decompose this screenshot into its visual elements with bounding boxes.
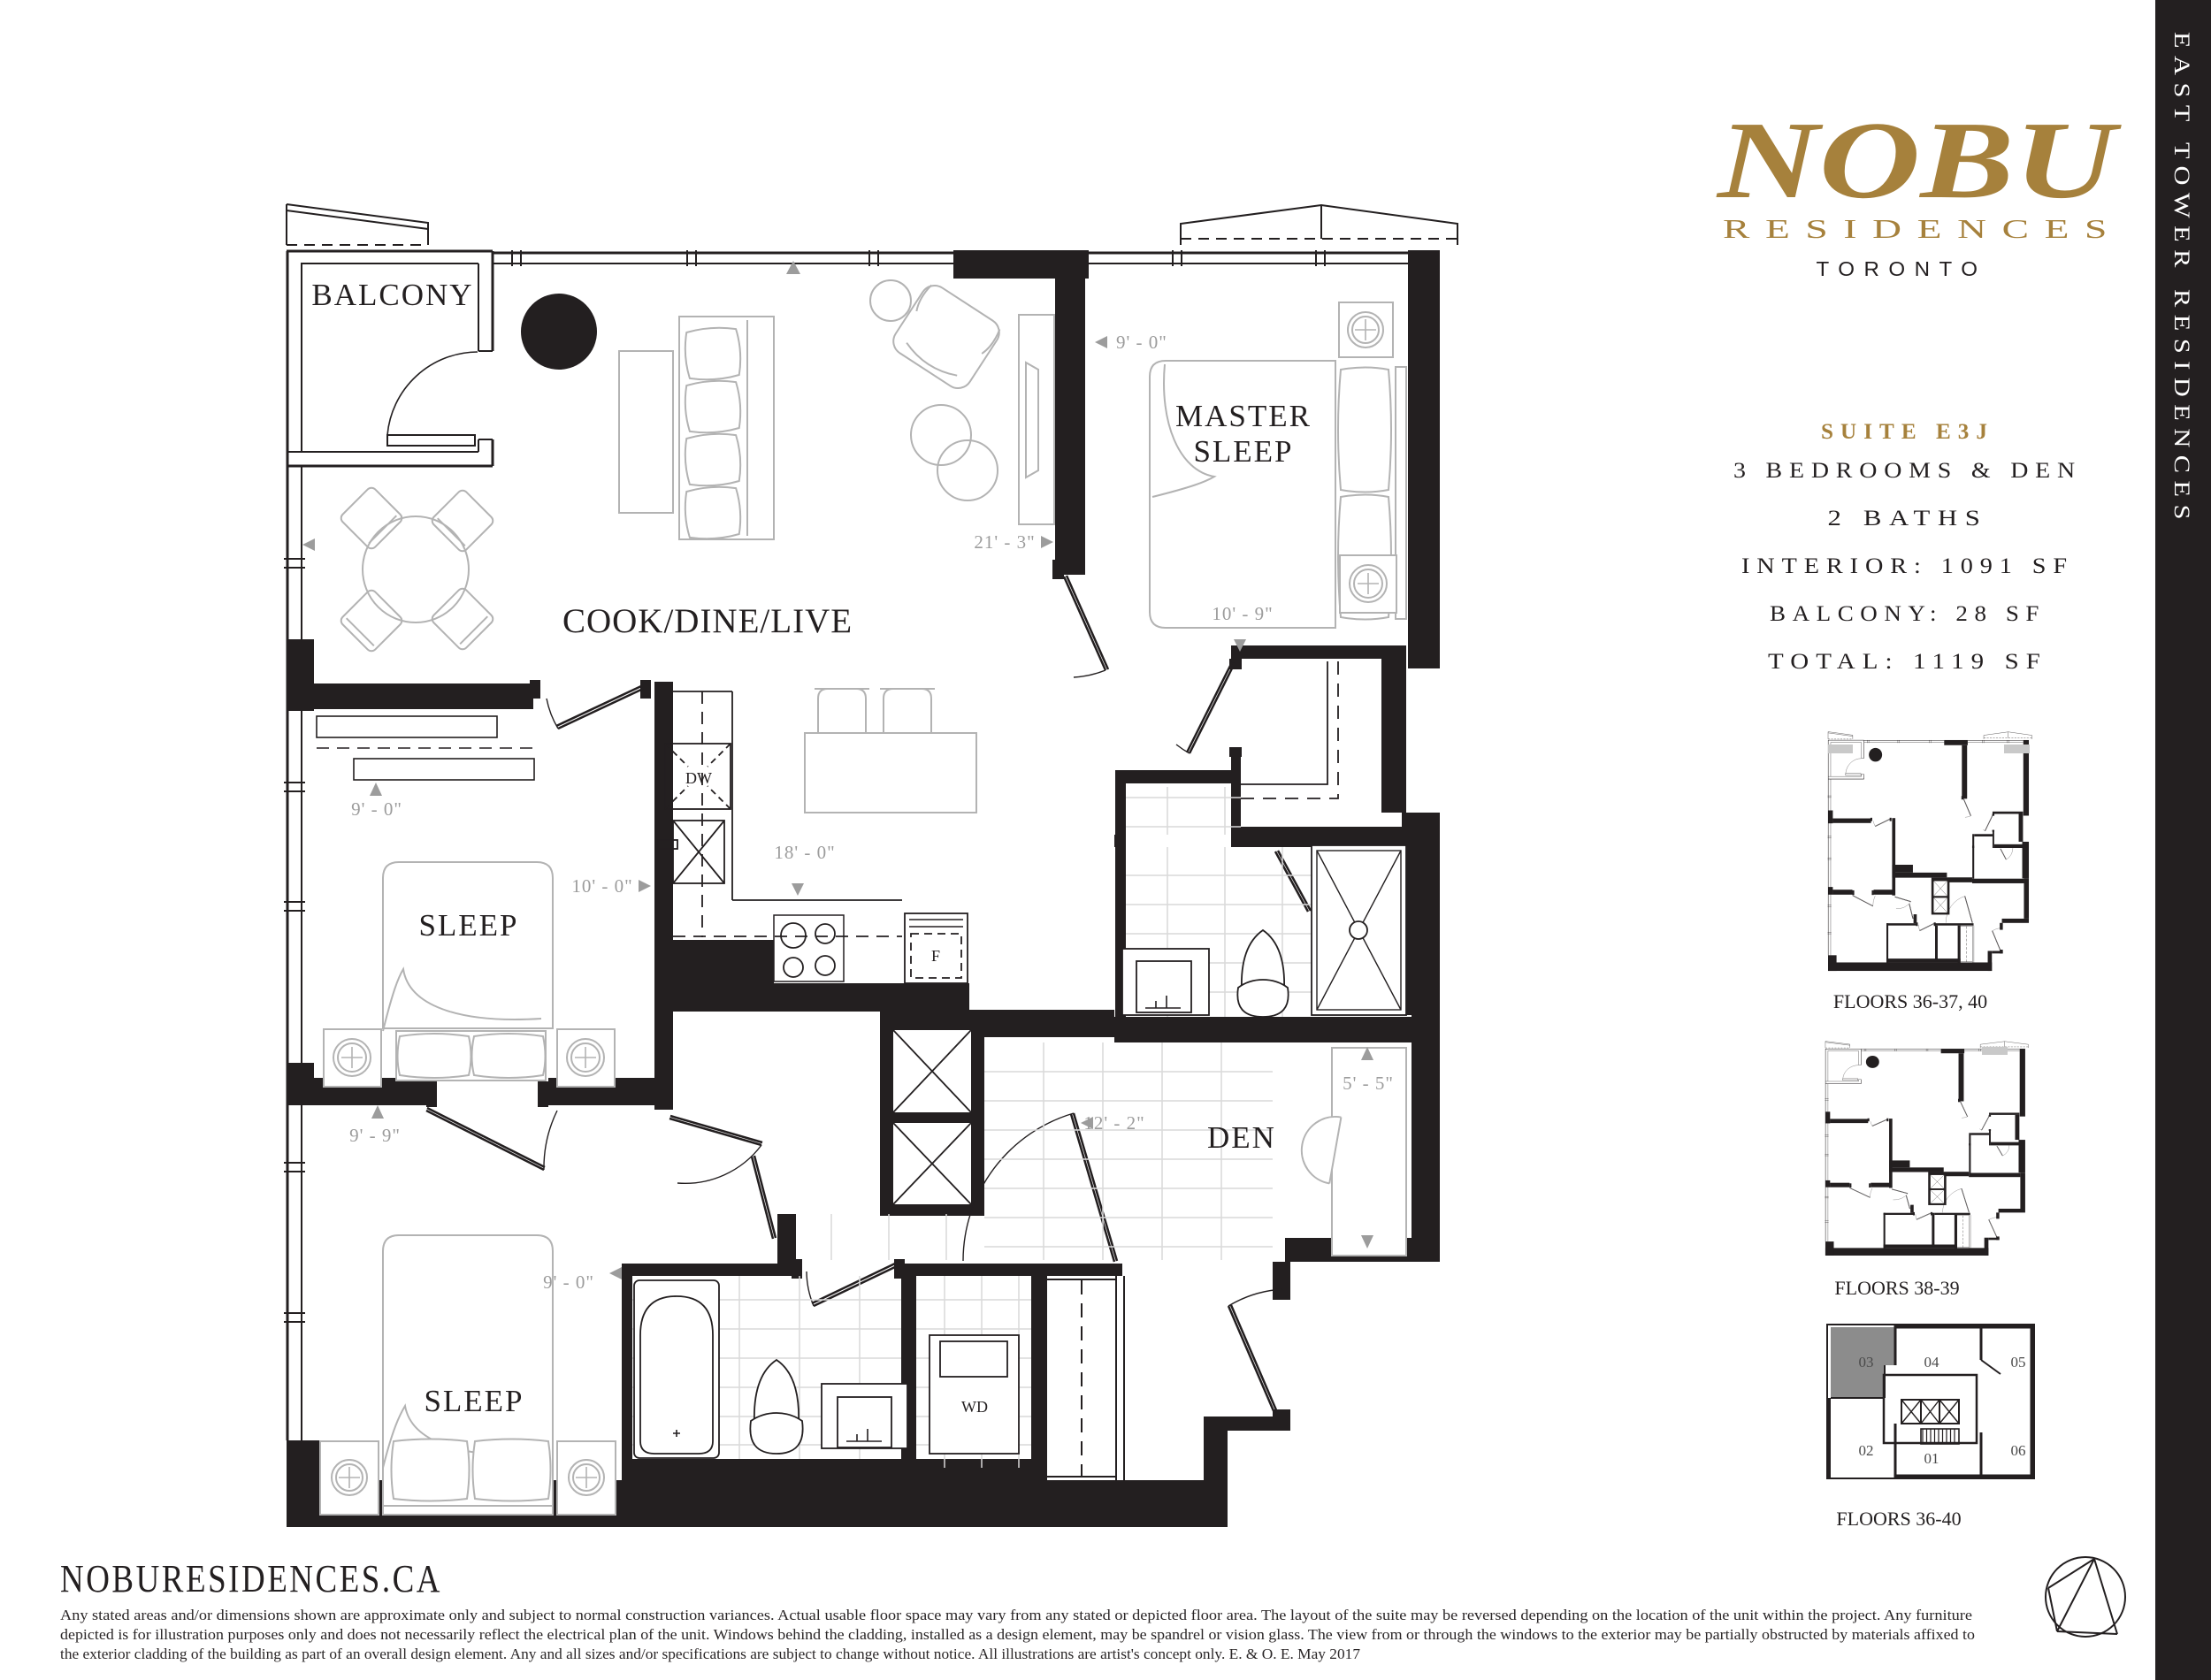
svg-text:F: F — [931, 947, 940, 965]
svg-text:2 BATHS: 2 BATHS — [1828, 507, 1988, 531]
svg-text:01: 01 — [1924, 1450, 1939, 1467]
svg-text:TOTAL: 1119 SF: TOTAL: 1119 SF — [1768, 650, 2047, 674]
svg-text:04: 04 — [1924, 1354, 1940, 1371]
svg-text:10' - 9": 10' - 9" — [1212, 603, 1273, 624]
svg-text:INTERIOR: 1091 SF: INTERIOR: 1091 SF — [1741, 554, 2074, 578]
svg-text:NOBURESIDENCES.CA: NOBURESIDENCES.CA — [60, 1557, 442, 1600]
svg-text:FLOORS 36-40: FLOORS 36-40 — [1836, 1508, 1961, 1530]
svg-text:18' - 0": 18' - 0" — [774, 842, 835, 863]
svg-text:RESIDENCES: RESIDENCES — [1723, 213, 2123, 244]
svg-text:SLEEP: SLEEP — [1193, 434, 1293, 469]
svg-text:05: 05 — [2011, 1354, 2026, 1371]
svg-text:depicted is for illustration p: depicted is for illustration purposes on… — [60, 1626, 1975, 1643]
svg-text:TORONTO: TORONTO — [1817, 257, 1987, 280]
svg-text:COOK/DINE/LIVE: COOK/DINE/LIVE — [562, 602, 853, 640]
svg-text:SLEEP: SLEEP — [418, 908, 518, 943]
svg-text:12' - 2": 12' - 2" — [1083, 1112, 1144, 1134]
svg-text:21' - 3": 21' - 3" — [974, 531, 1035, 553]
svg-text:BALCONY: 28 SF: BALCONY: 28 SF — [1770, 602, 2046, 626]
svg-text:the exterior cladding of the b: the exterior cladding of the building as… — [60, 1646, 1360, 1662]
svg-text:SLEEP: SLEEP — [424, 1384, 524, 1418]
svg-text:3 BEDROOMS & DEN: 3 BEDROOMS & DEN — [1733, 459, 2082, 483]
svg-text:NOBU: NOBU — [1715, 100, 2122, 222]
svg-text:10' - 0": 10' - 0" — [571, 875, 632, 897]
svg-text:9' - 0": 9' - 0" — [351, 798, 402, 820]
svg-text:Any stated areas and/or dimens: Any stated areas and/or dimensions shown… — [60, 1607, 1972, 1623]
svg-text:06: 06 — [2011, 1442, 2026, 1459]
svg-text:9' - 0": 9' - 0" — [543, 1271, 594, 1293]
svg-text:EAST TOWER RESIDENCES: EAST TOWER RESIDENCES — [2169, 32, 2193, 527]
svg-text:BALCONY: BALCONY — [311, 278, 473, 312]
svg-text:MASTER: MASTER — [1175, 399, 1312, 433]
svg-text:03: 03 — [1859, 1354, 1874, 1371]
svg-text:02: 02 — [1859, 1442, 1874, 1459]
svg-text:5' - 5": 5' - 5" — [1343, 1073, 1394, 1094]
svg-text:WD: WD — [961, 1398, 988, 1416]
svg-text:DEN: DEN — [1207, 1120, 1276, 1155]
svg-text:9' - 0": 9' - 0" — [1116, 332, 1167, 353]
svg-text:FLOORS 36-37, 40: FLOORS 36-37, 40 — [1833, 990, 1987, 1012]
svg-text:FLOORS 38-39: FLOORS 38-39 — [1834, 1277, 1959, 1299]
svg-text:DW: DW — [685, 769, 712, 787]
svg-text:SUITE E3J: SUITE E3J — [1821, 420, 1994, 444]
svg-text:9' - 9": 9' - 9" — [349, 1125, 401, 1146]
